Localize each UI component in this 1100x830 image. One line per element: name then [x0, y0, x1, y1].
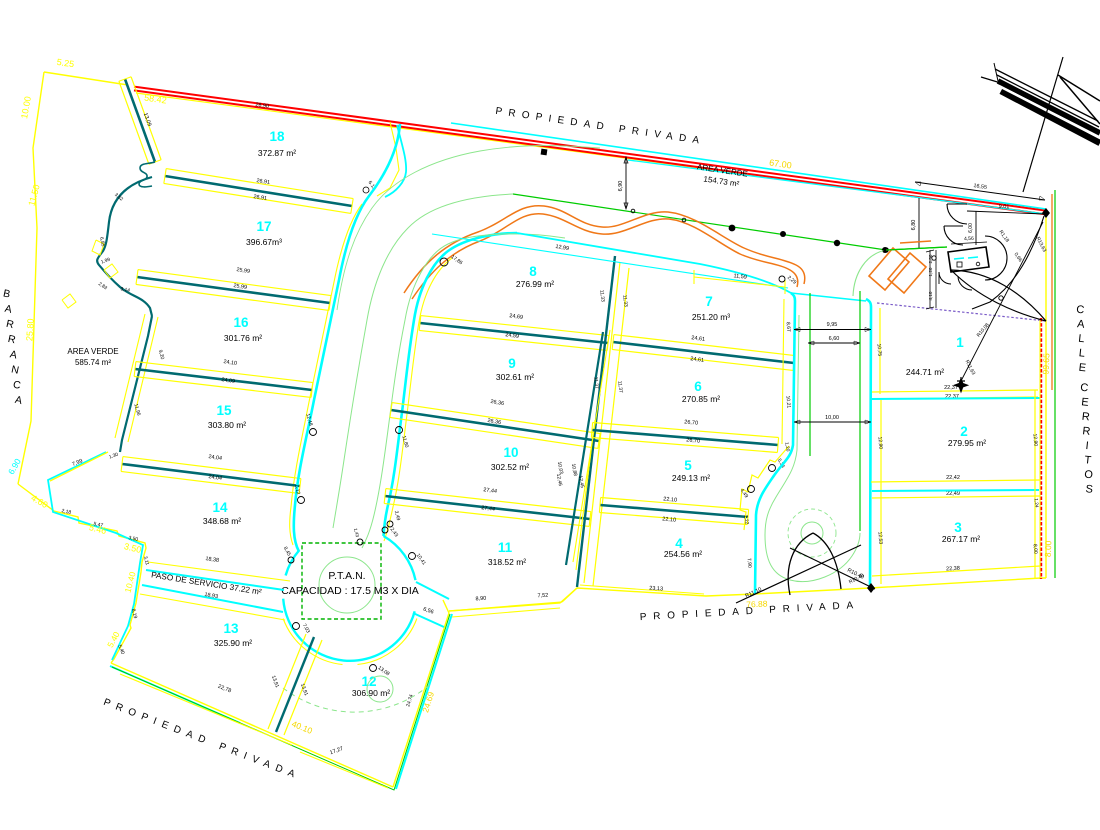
svg-text:6,00: 6,00: [968, 223, 974, 233]
svg-text:10: 10: [503, 445, 518, 460]
svg-text:12,90: 12,90: [1031, 433, 1038, 446]
svg-text:4,56: 4,56: [964, 236, 974, 243]
svg-text:5: 5: [684, 458, 692, 473]
svg-text:8,67: 8,67: [785, 322, 792, 332]
svg-text:L: L: [1078, 347, 1085, 360]
svg-text:267.17 m²: 267.17 m²: [942, 534, 980, 544]
svg-text:3: 3: [954, 520, 962, 535]
svg-text:76.88: 76.88: [746, 598, 768, 609]
svg-text:8,00: 8,00: [1032, 544, 1039, 554]
svg-text:16: 16: [233, 315, 249, 330]
svg-text:C: C: [1080, 382, 1089, 395]
svg-text:1: 1: [956, 335, 964, 350]
svg-text:6,60: 6,60: [829, 336, 840, 342]
svg-text:12,90: 12,90: [876, 436, 883, 449]
svg-text:S: S: [1085, 483, 1094, 496]
svg-text:9,95: 9,95: [827, 322, 838, 328]
svg-text:8: 8: [529, 264, 537, 279]
svg-text:C: C: [1076, 304, 1085, 317]
svg-text:302.61 m²: 302.61 m²: [496, 372, 534, 382]
svg-text:585.74 m²: 585.74 m²: [75, 358, 111, 367]
svg-text:9,01: 9,01: [999, 204, 1010, 210]
svg-text:13: 13: [223, 621, 239, 636]
svg-text:348.68 m²: 348.68 m²: [203, 516, 241, 526]
svg-text:25.80: 25.80: [24, 318, 36, 341]
svg-text:279.95 m²: 279.95 m²: [948, 438, 986, 448]
svg-text:11: 11: [498, 540, 513, 555]
svg-text:325.90 m²: 325.90 m²: [214, 638, 252, 648]
svg-text:26,70: 26,70: [684, 419, 698, 426]
svg-text:276.99 m²: 276.99 m²: [516, 279, 554, 289]
svg-text:R: R: [1081, 411, 1090, 424]
svg-text:4,10: 4,10: [928, 291, 933, 300]
svg-text:26,70: 26,70: [686, 437, 700, 444]
svg-text:8.00: 8.00: [1043, 540, 1054, 557]
svg-text:L: L: [1078, 333, 1085, 346]
svg-text:318.52 m²: 318.52 m²: [488, 557, 526, 567]
svg-text:22,10: 22,10: [663, 496, 677, 503]
svg-text:99.65: 99.65: [1040, 353, 1051, 375]
svg-text:17: 17: [256, 219, 271, 234]
svg-text:10,21: 10,21: [784, 395, 791, 408]
svg-text:301.76 m²: 301.76 m²: [224, 333, 262, 343]
svg-text:R: R: [1082, 425, 1091, 438]
svg-text:14: 14: [212, 500, 228, 515]
svg-text:251.20 m³: 251.20 m³: [692, 312, 730, 322]
svg-text:9: 9: [508, 356, 516, 371]
svg-text:1,20: 1,20: [928, 267, 933, 276]
svg-text:8,90: 8,90: [475, 596, 486, 603]
svg-text:7,52: 7,52: [537, 593, 548, 600]
svg-text:CAPACIDAD : 17.5 M3 X DIA: CAPACIDAD : 17.5 M3 X DIA: [281, 585, 419, 597]
svg-text:249.13 m²: 249.13 m²: [672, 473, 710, 483]
svg-text:396.67m³: 396.67m³: [246, 237, 282, 247]
svg-text:22,10: 22,10: [662, 516, 676, 523]
svg-text:254.56 m²: 254.56 m²: [664, 549, 702, 559]
svg-text:12,53: 12,53: [876, 531, 883, 544]
svg-text:10,75: 10,75: [875, 343, 882, 356]
svg-text:23,13: 23,13: [649, 586, 663, 593]
svg-text:303.80 m²: 303.80 m²: [208, 420, 246, 430]
svg-text:2,50: 2,50: [928, 254, 933, 263]
svg-text:E: E: [1081, 396, 1090, 409]
svg-text:7: 7: [705, 294, 713, 309]
svg-text:306.90 m²: 306.90 m²: [352, 688, 390, 698]
svg-text:E: E: [1078, 362, 1087, 375]
svg-text:22,38: 22,38: [946, 566, 960, 573]
svg-text:18: 18: [269, 129, 285, 144]
svg-text:15: 15: [216, 403, 232, 418]
svg-text:6,80: 6,80: [911, 220, 917, 231]
svg-text:270.85 m²: 270.85 m²: [682, 394, 720, 404]
svg-text:6,90: 6,90: [618, 181, 624, 192]
svg-text:302.52 m²: 302.52 m²: [491, 462, 529, 472]
svg-text:2: 2: [960, 424, 968, 439]
svg-text:1,24: 1,24: [1033, 498, 1040, 508]
svg-text:10,00: 10,00: [825, 415, 839, 421]
svg-text:7,90: 7,90: [746, 558, 753, 568]
svg-text:6: 6: [694, 379, 702, 394]
svg-text:22,42: 22,42: [946, 475, 960, 481]
svg-text:AREA VERDE: AREA VERDE: [67, 347, 118, 356]
svg-text:244.71 m²: 244.71 m²: [906, 367, 944, 377]
svg-text:O: O: [1084, 469, 1094, 482]
svg-text:372.87 m²: 372.87 m²: [258, 148, 296, 158]
svg-text:22,49: 22,49: [946, 491, 960, 497]
svg-text:P.T.A.N.: P.T.A.N.: [328, 570, 365, 582]
